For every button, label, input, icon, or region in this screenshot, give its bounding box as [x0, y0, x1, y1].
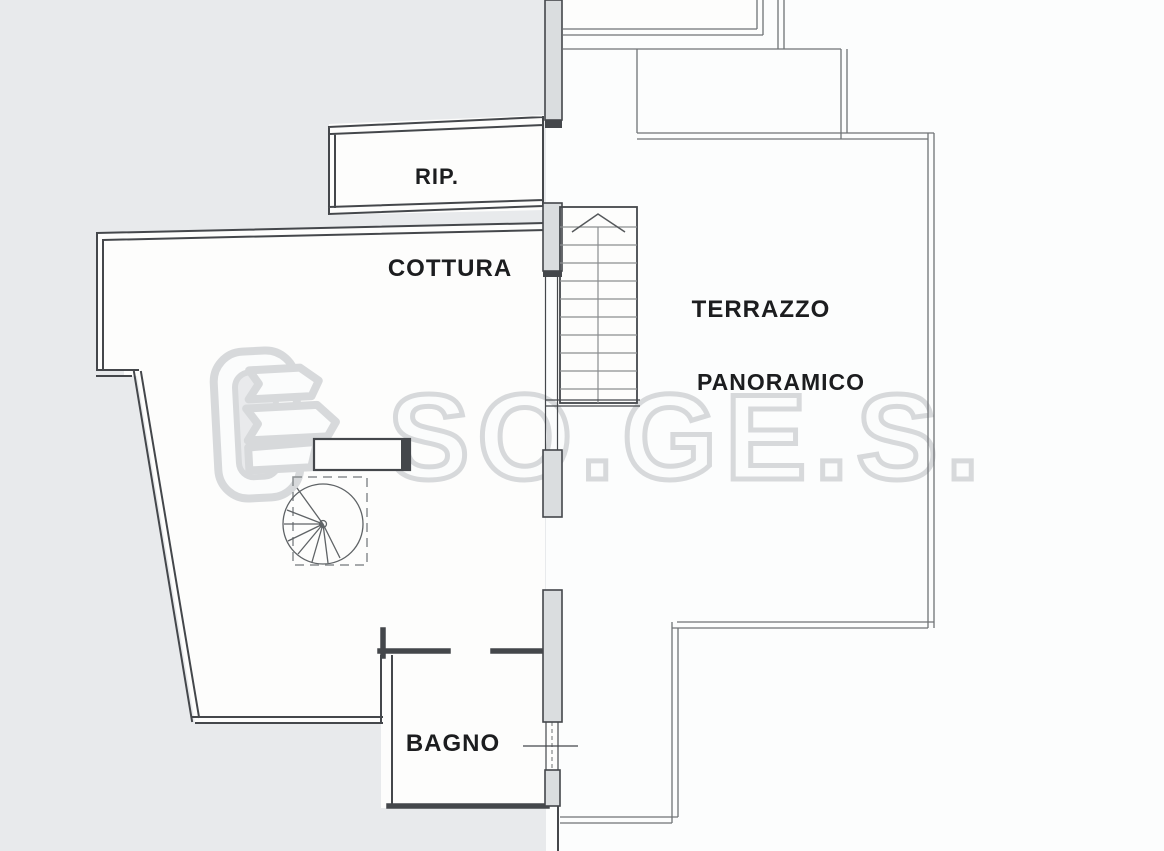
floor-plan-canvas: SO.GE.S. [0, 0, 1164, 851]
cottura-label: COTTURA [388, 255, 512, 282]
cottura-terrace-opening [546, 277, 558, 450]
cottura-room-walls [97, 223, 545, 723]
rip-label: RIP. [415, 164, 459, 189]
terrazzo-label-line1: TERRAZZO [692, 296, 831, 323]
bagno-label: BAGNO [406, 730, 500, 757]
spiral-staircase [283, 477, 367, 565]
kitchen-counter [314, 439, 410, 470]
terrazzo-label-line2: PANORAMICO [697, 369, 865, 395]
terrace-outline [560, 0, 934, 823]
linework-layer: RIP. COTTURA TERRAZZO PANORAMICO BAGNO [0, 0, 1164, 851]
bagno-window [523, 722, 578, 770]
staircase [545, 207, 640, 406]
